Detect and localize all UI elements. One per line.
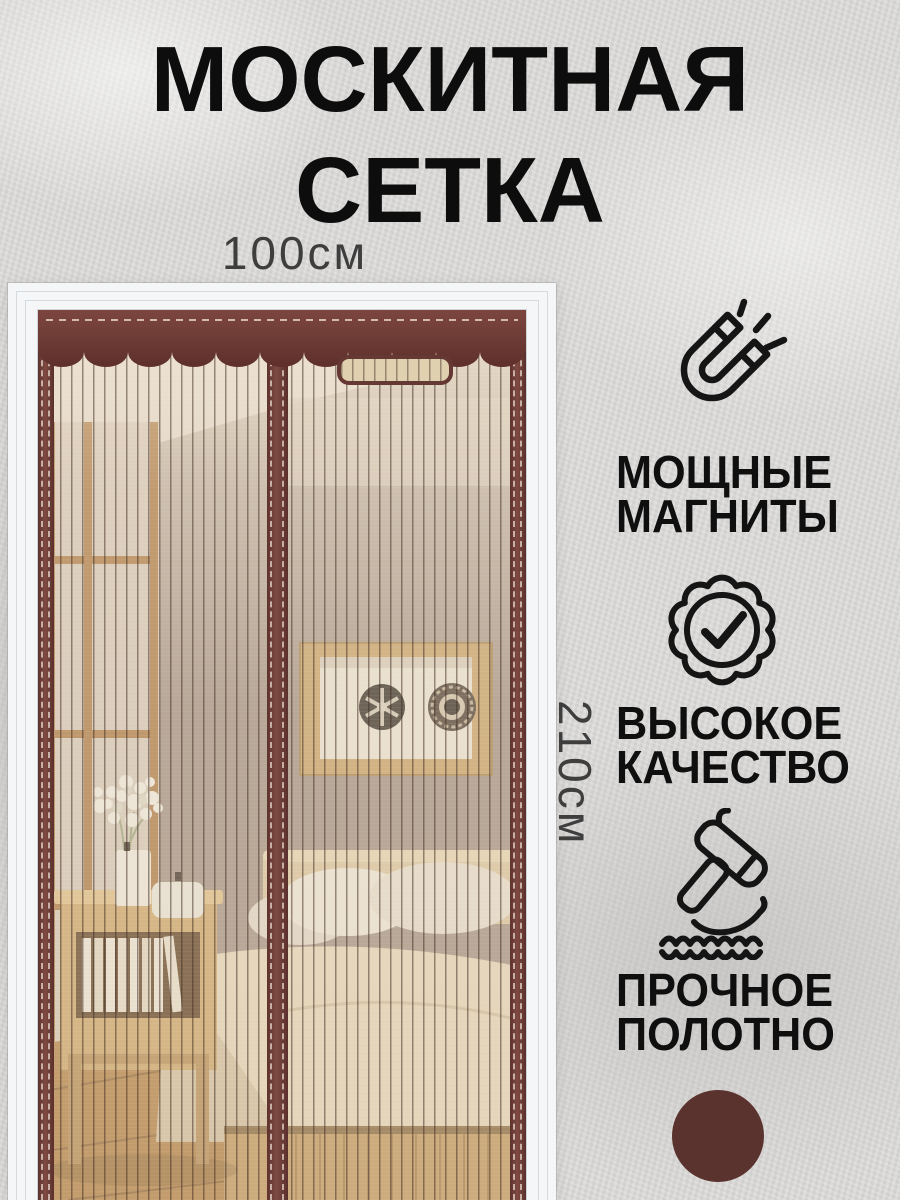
hammer-icon <box>646 808 798 960</box>
feature-label-quality: ВЫСОКОЕ КАЧЕСТВО <box>616 701 850 789</box>
width-dimension-label: 100см <box>145 226 445 280</box>
door-frame-molding <box>16 291 17 1200</box>
door-frame-molding <box>16 291 548 292</box>
color-swatch <box>672 1090 764 1182</box>
feature-label-line: ПОЛОТНО <box>616 1012 835 1056</box>
product-title-line1: МОСКИТНАЯ <box>0 24 900 135</box>
net-magnetic-closure <box>267 310 288 1200</box>
feature-label-line: ВЫСОКОЕ <box>616 701 850 745</box>
net-border-right <box>510 310 526 1200</box>
door-opening <box>38 310 526 1200</box>
quality-badge-icon <box>652 558 792 698</box>
height-dimension-label: 210см <box>548 700 602 880</box>
door-frame-molding <box>538 300 539 1200</box>
feature-label-magnets: МОЩНЫЕ МАГНИТЫ <box>616 450 839 538</box>
feature-label-line: МАГНИТЫ <box>616 494 839 538</box>
feature-label-line: КАЧЕСТВО <box>616 745 850 789</box>
product-banner: МОСКИТНАЯ СЕТКА 100см <box>0 0 900 1200</box>
door-frame-molding <box>25 300 539 301</box>
door-frame-molding <box>25 300 26 1200</box>
net-valance-window <box>337 355 453 385</box>
magnet-icon <box>650 298 800 448</box>
product-title-line2: СЕТКА <box>0 135 900 246</box>
product-title: МОСКИТНАЯ СЕТКА <box>0 24 900 245</box>
feature-label-line: ПРОЧНОЕ <box>616 968 835 1012</box>
feature-label-fabric: ПРОЧНОЕ ПОЛОТНО <box>616 968 835 1056</box>
product-photo <box>8 283 556 1200</box>
net-border-left <box>38 310 54 1200</box>
feature-label-line: МОЩНЫЕ <box>616 450 839 494</box>
